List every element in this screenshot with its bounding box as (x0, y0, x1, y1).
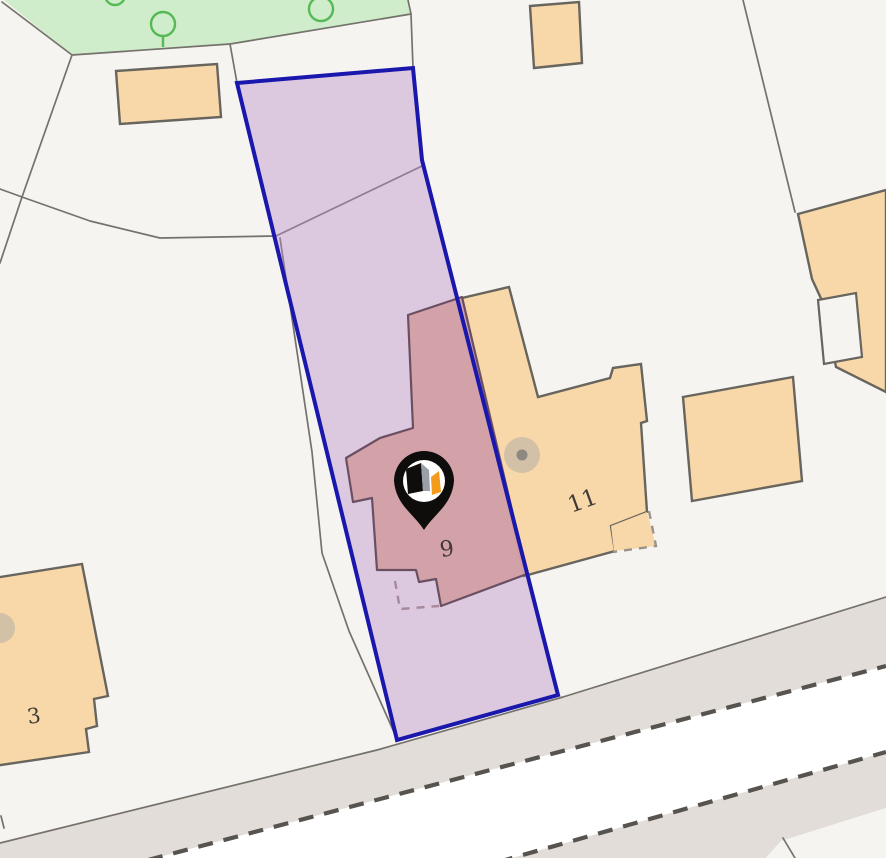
building-right-detached (683, 377, 802, 501)
map-viewport[interactable]: 9 11 3 (0, 0, 886, 858)
building-small-top (530, 2, 582, 68)
tree-canopy-marker-11-center (517, 450, 528, 461)
building-right-courtyard (818, 293, 862, 364)
map-canvas[interactable]: 9 11 3 (0, 0, 886, 858)
building-top-left (116, 64, 221, 124)
